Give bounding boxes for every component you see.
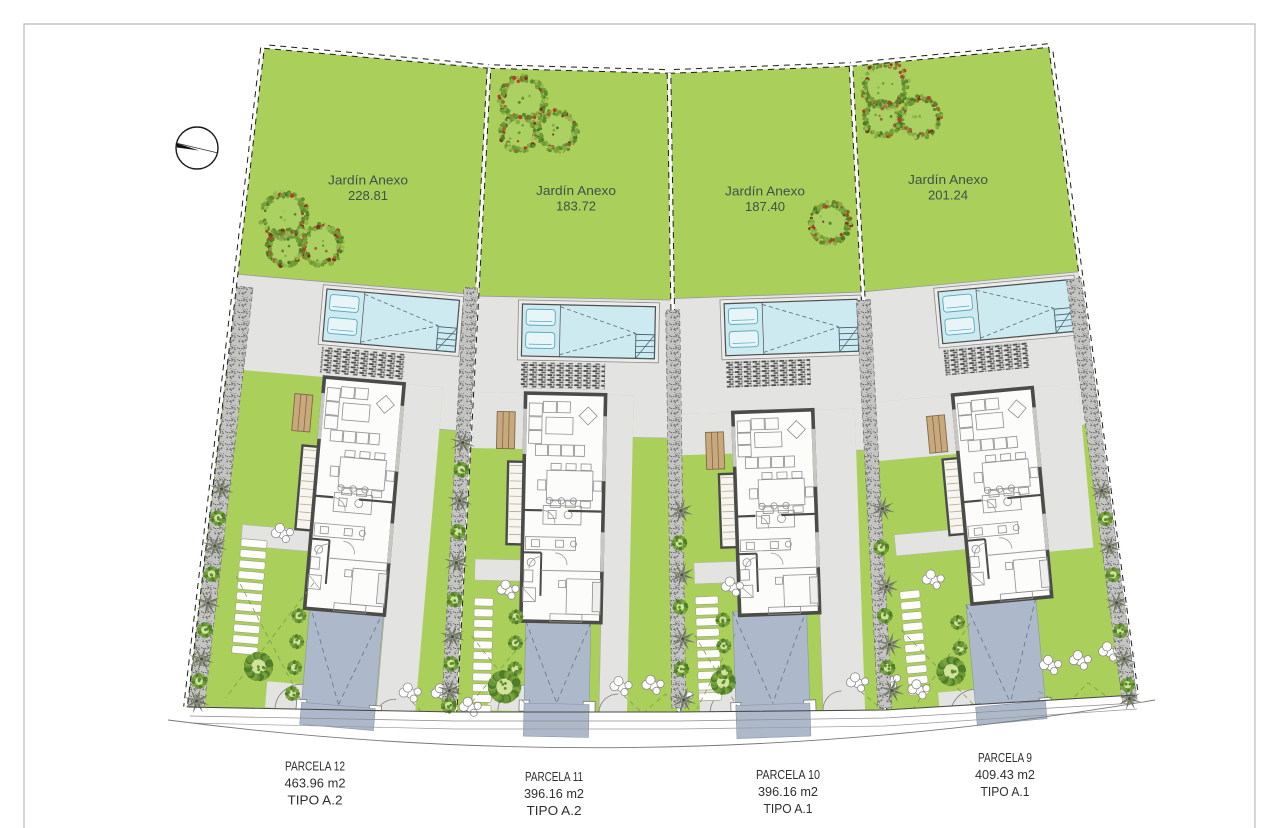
svg-text:Jardín Anexo: Jardín Anexo: [536, 183, 616, 198]
svg-text:228.81: 228.81: [348, 188, 388, 203]
svg-text:201.24: 201.24: [928, 188, 968, 203]
svg-text:183.72: 183.72: [556, 199, 596, 214]
svg-text:396.16 m2: 396.16 m2: [758, 784, 818, 799]
svg-text:PARCELA 10: PARCELA 10: [756, 767, 820, 782]
svg-text:Jardín Anexo: Jardín Anexo: [908, 172, 988, 187]
svg-text:396.16 m2: 396.16 m2: [524, 786, 584, 801]
svg-text:TIPO A.2: TIPO A.2: [527, 803, 582, 818]
svg-text:463.96 m2: 463.96 m2: [285, 776, 346, 791]
svg-text:409.43 m2: 409.43 m2: [975, 767, 1035, 782]
svg-text:TIPO A.1: TIPO A.1: [981, 784, 1030, 799]
svg-text:Jardín Anexo: Jardín Anexo: [328, 173, 408, 188]
svg-text:PARCELA 11: PARCELA 11: [525, 769, 583, 784]
svg-text:PARCELA 9: PARCELA 9: [978, 750, 1032, 765]
svg-text:TIPO A.1: TIPO A.1: [764, 801, 813, 816]
svg-text:TIPO A.2: TIPO A.2: [288, 793, 343, 808]
svg-text:Jardín Anexo: Jardín Anexo: [725, 184, 805, 199]
svg-text:187.40: 187.40: [745, 199, 785, 214]
svg-text:PARCELA 12: PARCELA 12: [285, 759, 345, 774]
